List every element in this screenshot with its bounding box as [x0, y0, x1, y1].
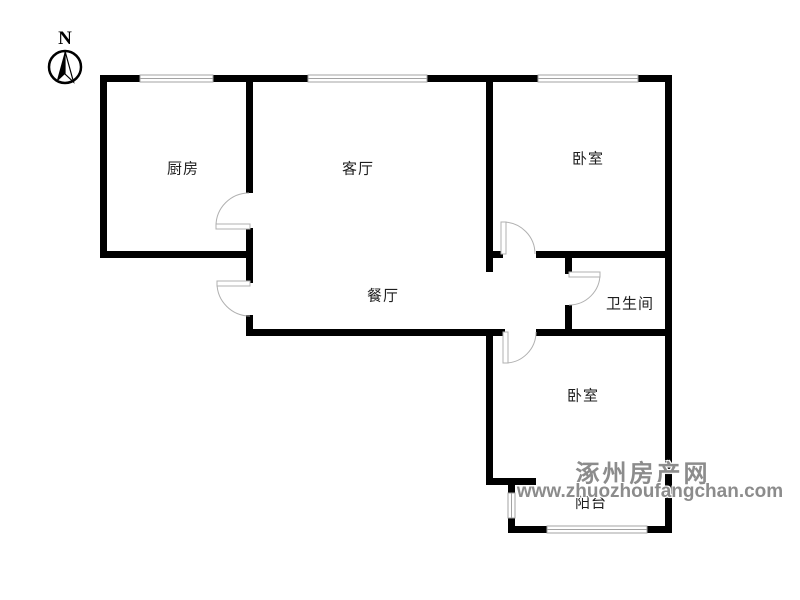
balcony-bottom-window [547, 526, 647, 533]
compass-needle-dark [57, 51, 66, 82]
watermark-site-url: www.zhuozhoufangchan.com [517, 481, 783, 503]
compass-north-label: N [58, 28, 72, 49]
wall [486, 329, 493, 485]
wall [536, 251, 672, 258]
bathroom-door [569, 272, 600, 305]
doors [216, 193, 600, 363]
balcony-side-window [508, 493, 515, 518]
compass-needle-light [65, 51, 74, 82]
north-compass: N [49, 28, 81, 83]
wall [486, 75, 493, 272]
wall [246, 75, 253, 193]
kitchen-window [140, 75, 213, 82]
wall [565, 305, 572, 329]
bedroom-bottom-label: 卧室 [567, 385, 599, 406]
kitchen-door [216, 193, 250, 229]
wall [213, 75, 308, 82]
living-room-window [308, 75, 427, 82]
bedroom-top-window [538, 75, 638, 82]
wall [427, 75, 538, 82]
wall [647, 526, 672, 533]
wall [536, 329, 672, 336]
wall [246, 329, 505, 336]
wall [508, 478, 515, 493]
living-room-label: 客厅 [342, 158, 374, 179]
wall [100, 75, 107, 258]
entry-door [217, 281, 250, 316]
wall [100, 251, 253, 258]
floor-plan-drawing: N [0, 0, 800, 600]
wall [246, 228, 253, 283]
dining-room-label: 餐厅 [367, 285, 399, 306]
floor-plan-image: N 厨房 客厅 卧室 餐厅 卫生间 卧室 阳台 涿州房产网 www.zhuozh… [0, 0, 800, 600]
bedroom-bottom-door [503, 332, 536, 363]
kitchen-label: 厨房 [167, 158, 199, 179]
bedroom-top-label: 卧室 [572, 148, 604, 169]
wall [508, 526, 547, 533]
bathroom-label: 卫生间 [606, 293, 654, 314]
bedroom-top-door [501, 222, 535, 254]
